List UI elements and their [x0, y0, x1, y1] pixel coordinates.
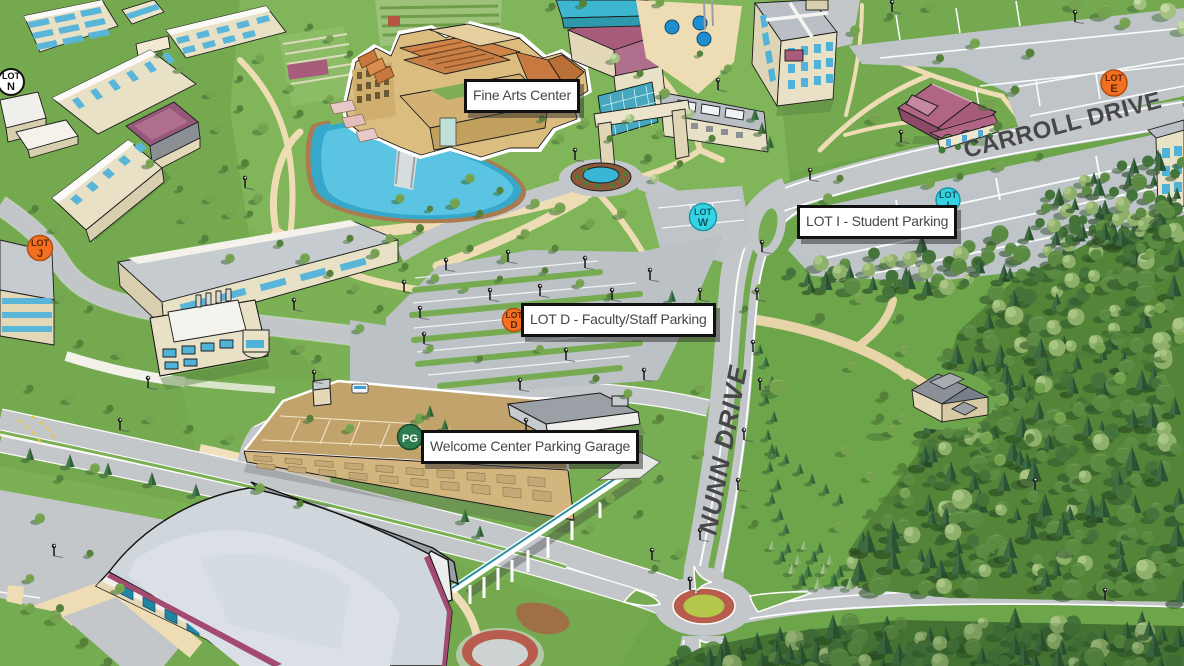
svg-text:D: D — [510, 320, 517, 331]
svg-text:LOT: LOT — [939, 190, 957, 200]
svg-text:LOT: LOT — [2, 71, 20, 81]
svg-text:LOT: LOT — [1105, 73, 1123, 83]
svg-text:PG: PG — [402, 433, 418, 445]
svg-text:W: W — [698, 217, 709, 229]
svg-text:N: N — [7, 81, 15, 93]
svg-text:LOT: LOT — [31, 238, 49, 248]
svg-text:LOT: LOT — [694, 207, 712, 217]
svg-text:J: J — [37, 248, 43, 260]
svg-text:E: E — [1110, 83, 1117, 95]
